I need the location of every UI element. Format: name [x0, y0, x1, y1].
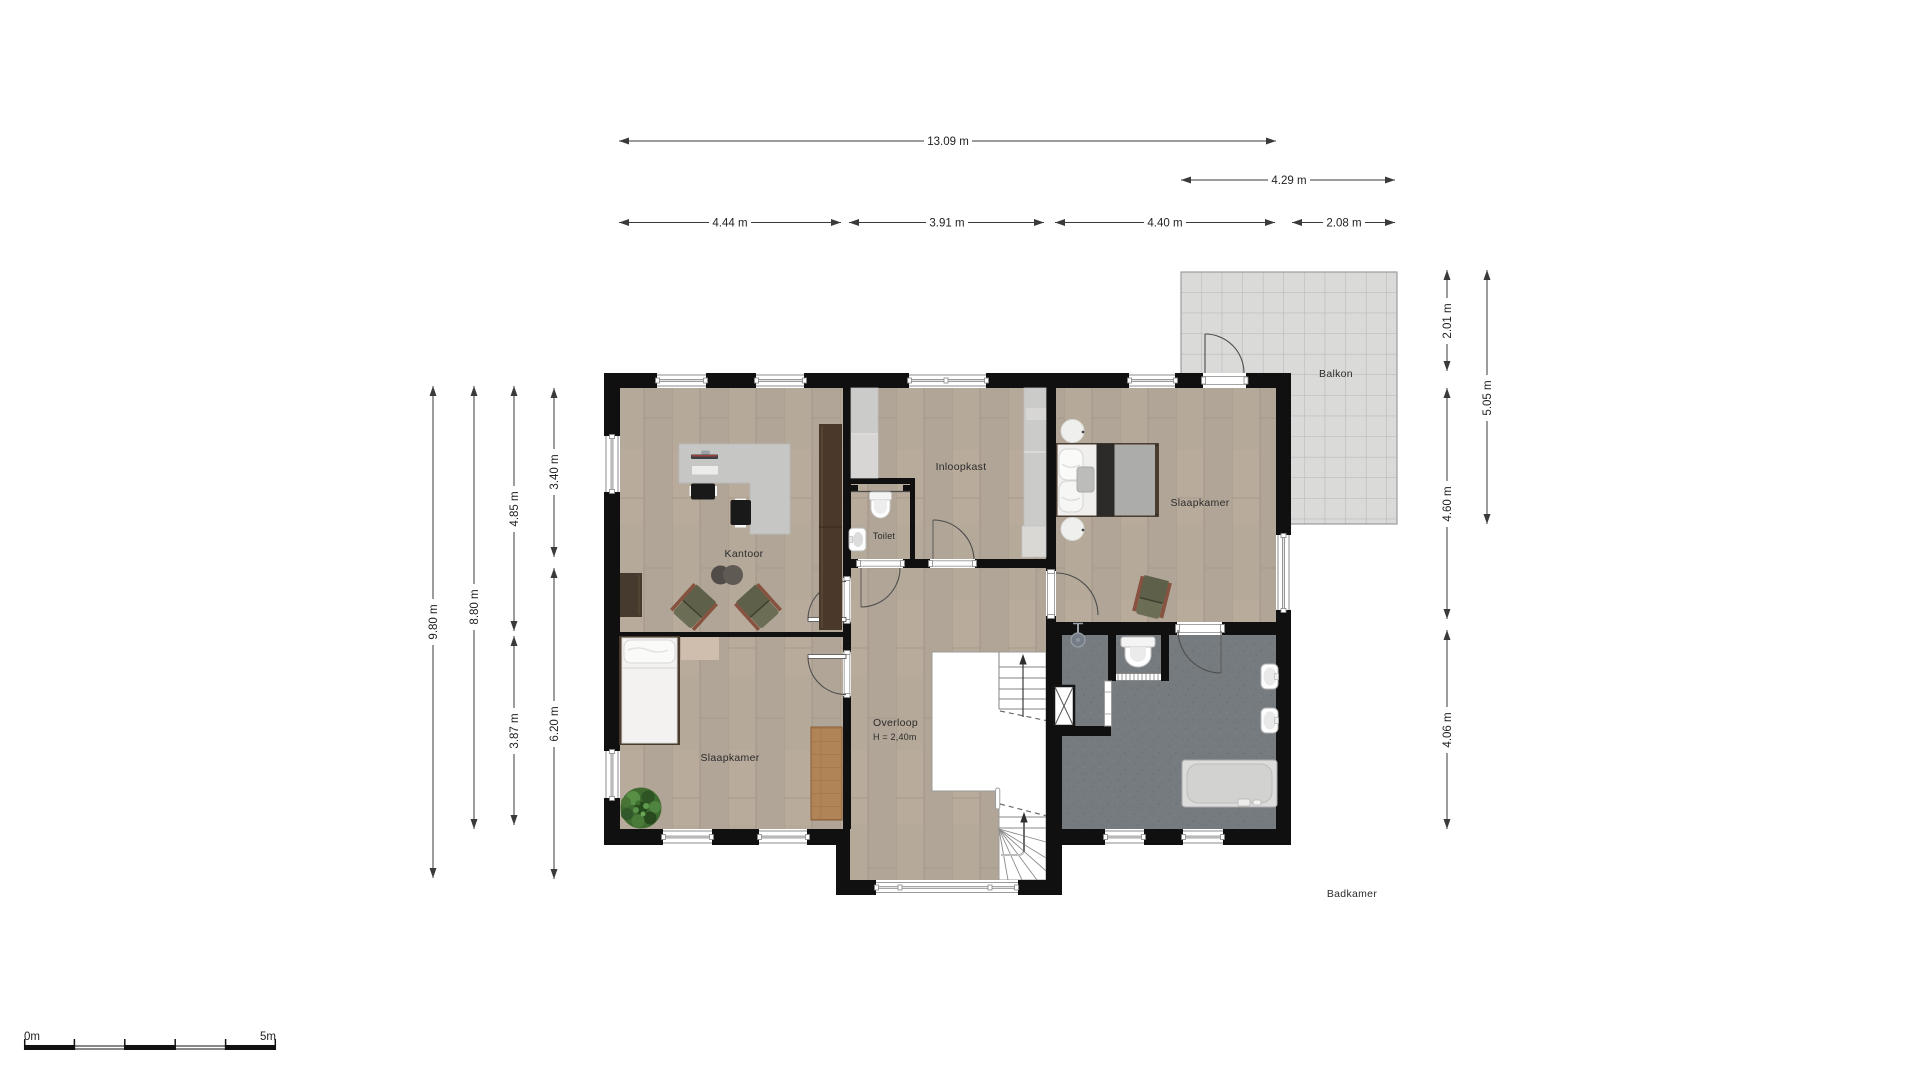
svg-text:Overloop: Overloop	[873, 717, 918, 729]
svg-text:H = 2,40m: H = 2,40m	[873, 732, 917, 742]
svg-text:4.85 m: 4.85 m	[509, 491, 521, 526]
svg-text:Balkon: Balkon	[1319, 368, 1353, 380]
svg-text:8.80 m: 8.80 m	[469, 589, 481, 624]
svg-text:5.05 m: 5.05 m	[1482, 380, 1494, 415]
svg-text:5m: 5m	[260, 1031, 276, 1043]
svg-text:Slaapkamer: Slaapkamer	[700, 752, 759, 764]
svg-text:Kantoor: Kantoor	[725, 548, 764, 560]
svg-text:4.06 m: 4.06 m	[1442, 712, 1454, 747]
svg-text:13.09 m: 13.09 m	[927, 136, 969, 148]
svg-text:Slaapkamer: Slaapkamer	[1170, 497, 1229, 509]
svg-text:0m: 0m	[24, 1031, 40, 1043]
svg-text:2.01 m: 2.01 m	[1442, 303, 1454, 338]
svg-text:3.40 m: 3.40 m	[549, 454, 561, 489]
svg-text:3.87 m: 3.87 m	[509, 713, 521, 748]
svg-text:Toilet: Toilet	[873, 531, 896, 541]
svg-text:2.08 m: 2.08 m	[1326, 218, 1361, 230]
svg-text:3.91 m: 3.91 m	[929, 218, 964, 230]
svg-text:4.44 m: 4.44 m	[712, 218, 747, 230]
svg-text:4.29 m: 4.29 m	[1271, 175, 1306, 187]
svg-text:6.20 m: 6.20 m	[549, 706, 561, 741]
svg-text:4.60 m: 4.60 m	[1442, 486, 1454, 521]
svg-text:4.40 m: 4.40 m	[1147, 218, 1182, 230]
svg-text:9.80 m: 9.80 m	[428, 604, 440, 639]
svg-text:Inloopkast: Inloopkast	[936, 461, 987, 473]
svg-text:Badkamer: Badkamer	[1327, 888, 1377, 900]
